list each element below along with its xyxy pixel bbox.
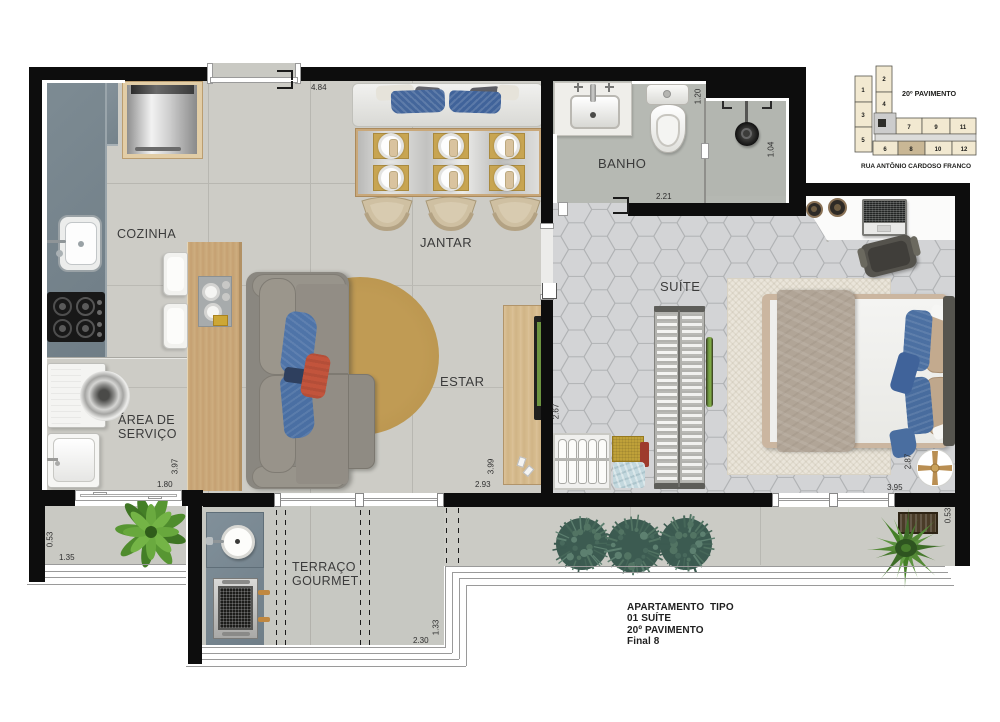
svg-text:12: 12 <box>961 147 968 153</box>
svg-text:11: 11 <box>960 125 967 131</box>
svg-text:10: 10 <box>935 147 942 153</box>
